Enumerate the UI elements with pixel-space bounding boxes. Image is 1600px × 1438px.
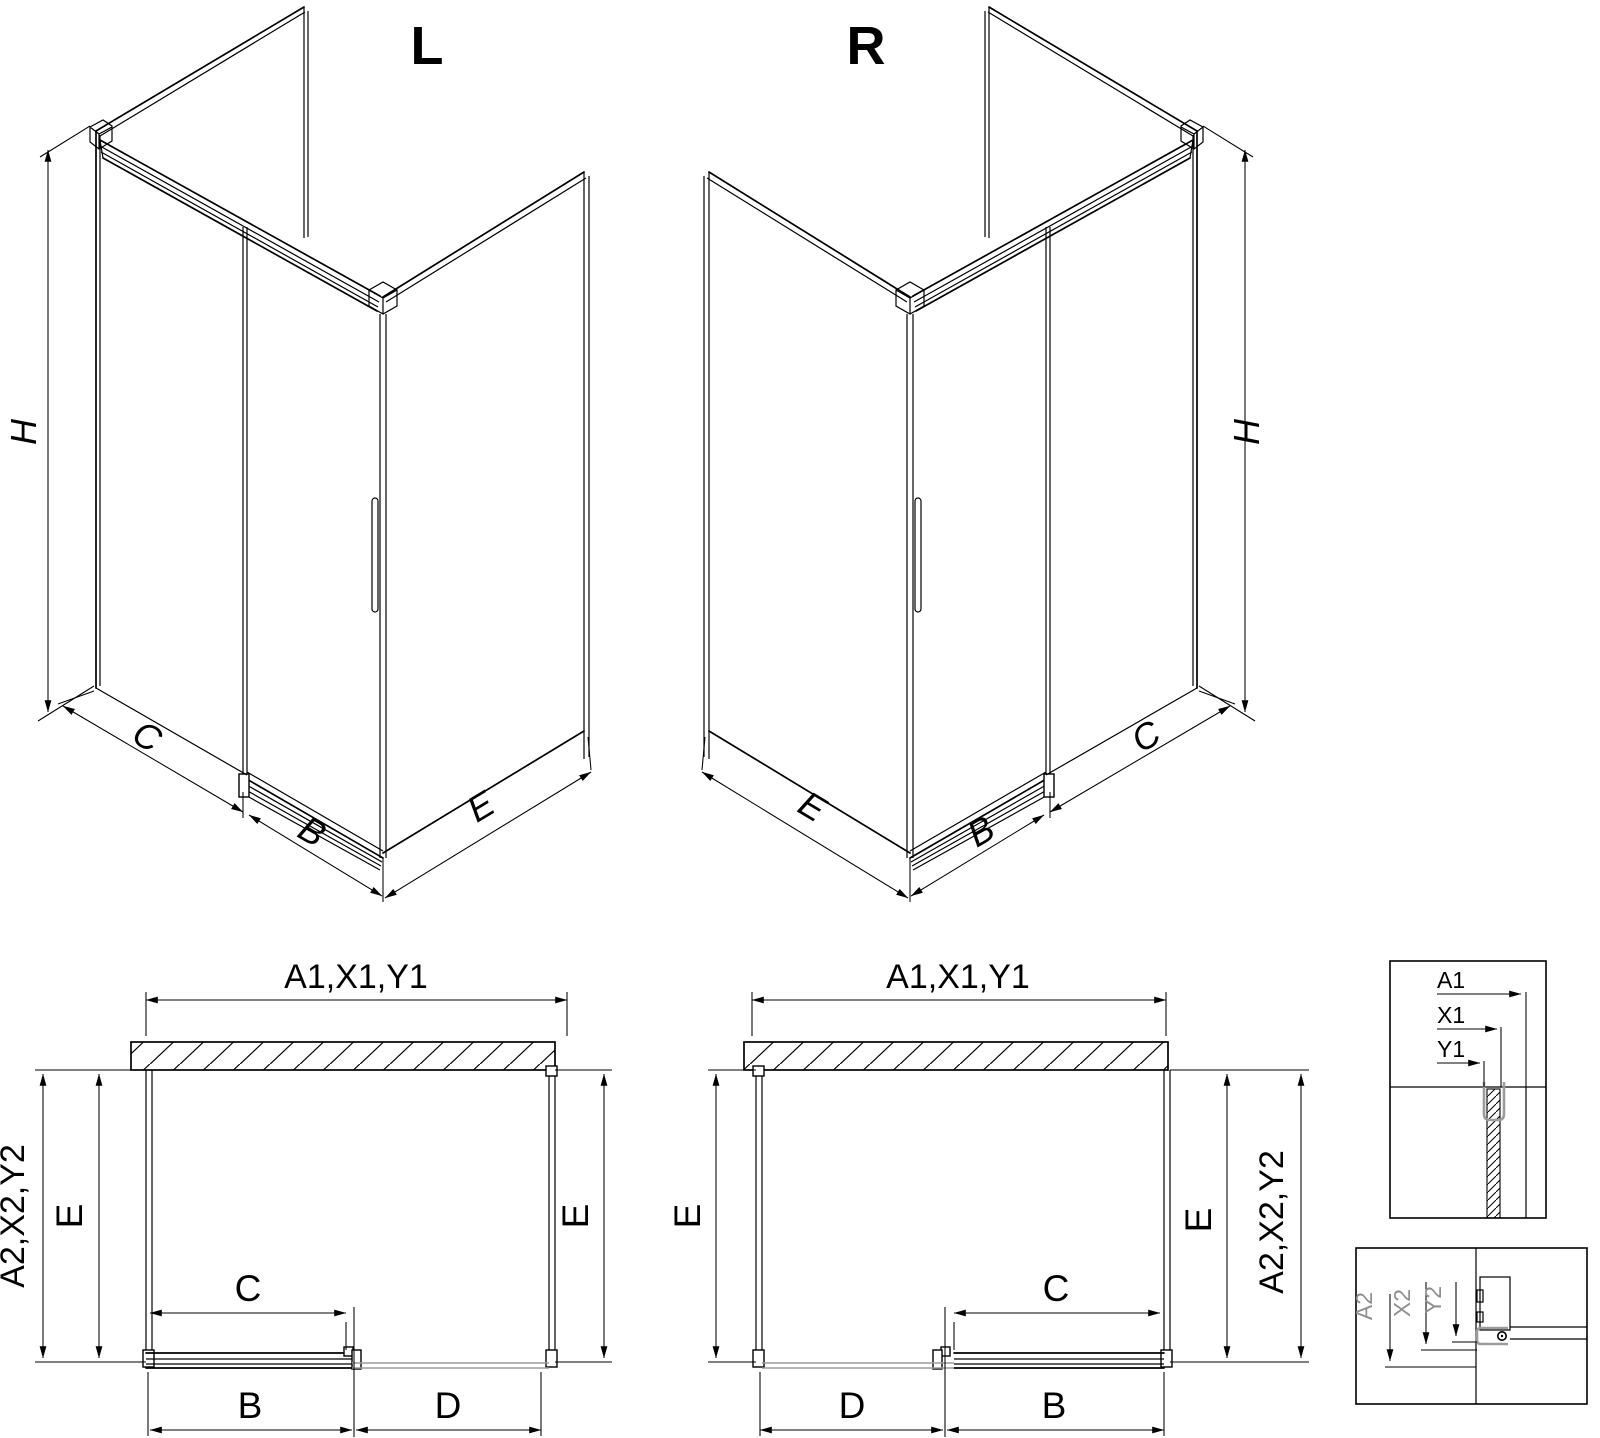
iso-right-title: R (847, 16, 886, 76)
detail-wall-dim-x1: X1 (1437, 1002, 1465, 1028)
plan-left-dim-side-right: E (555, 1204, 596, 1229)
wall-section-hatched (131, 1042, 555, 1070)
iso-view-right: R H C B E (702, 7, 1267, 902)
plan-right-dim-total-width: A1,X1,Y1 (886, 958, 1030, 996)
plan-left-dim-fixed: D (435, 1385, 462, 1426)
plan-left-dim-door: B (238, 1385, 263, 1426)
iso-view-left: L H C B E (3, 7, 591, 902)
detail-wall-dim-a1: A1 (1437, 967, 1465, 993)
plan-right-dim-opening: C (1043, 1268, 1070, 1309)
iso-left-dim-height: H (3, 418, 44, 445)
iso-left-dim-fixed: C (126, 712, 170, 761)
detail-box-bottom-track: A2 X2 Y2 (1351, 1248, 1587, 1404)
iso-left-dim-side: E (460, 782, 503, 830)
iso-left-title: L (411, 16, 444, 76)
plan-left-dim-opening: C (235, 1268, 262, 1309)
detail-track-dim-x2: X2 (1389, 1289, 1415, 1317)
wall-section-hatched (744, 1042, 1168, 1070)
plan-right-dim-total-depth: A2,X2,Y2 (1253, 1150, 1291, 1294)
shower-enclosure-technical-drawing: L H C B E R H C B E (0, 0, 1600, 1438)
iso-right-dim-side: E (792, 783, 835, 831)
plan-view-left: A1,X1,Y1 A2,X2,Y2 E E C B D (0, 958, 612, 1437)
plan-right-dim-door: B (1042, 1385, 1067, 1426)
detail-box-wall-profile: A1 X1 Y1 (1390, 961, 1546, 1218)
plan-left-dim-side-left: E (49, 1204, 90, 1229)
detail-track-dim-a2: A2 (1351, 1292, 1377, 1320)
plan-left-dim-total-width: A1,X1,Y1 (284, 958, 428, 996)
iso-right-dim-height: H (1226, 418, 1267, 445)
plan-right-dim-fixed: D (839, 1385, 866, 1426)
drawing-canvas: L H C B E R H C B E (0, 0, 1600, 1438)
detail-wall-dim-y1: Y1 (1437, 1036, 1465, 1062)
plan-right-dim-side-left: E (667, 1204, 708, 1229)
plan-left-dim-total-depth: A2,X2,Y2 (0, 1144, 32, 1288)
iso-right-dim-fixed: C (1124, 711, 1168, 760)
plan-right-dim-side-right: E (1178, 1208, 1219, 1233)
plan-view-right: A1,X1,Y1 A2,X2,Y2 E E C B D (667, 958, 1309, 1437)
detail-track-dim-y2: Y2 (1420, 1286, 1446, 1314)
